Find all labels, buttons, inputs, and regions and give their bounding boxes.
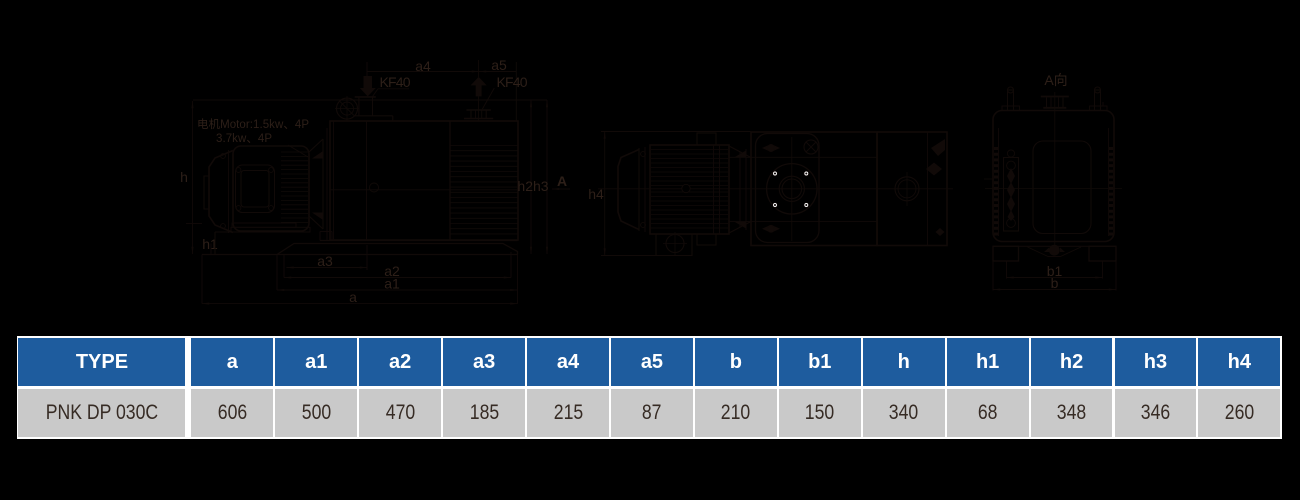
svg-text:3.7kw、4P: 3.7kw、4P — [216, 133, 272, 145]
svg-text:A向: A向 — [1044, 72, 1067, 88]
svg-text:KF40: KF40 — [380, 74, 411, 90]
svg-text:h2h3: h2h3 — [517, 178, 548, 194]
svg-text:h4: h4 — [588, 186, 604, 202]
svg-text:a5: a5 — [491, 57, 507, 73]
svg-text:h1: h1 — [202, 236, 218, 252]
svg-text:a1: a1 — [384, 276, 400, 292]
svg-text:A: A — [557, 173, 567, 189]
svg-text:a3: a3 — [317, 253, 333, 269]
svg-text:h: h — [180, 169, 188, 185]
svg-text:a: a — [349, 289, 357, 305]
svg-text:b: b — [1051, 275, 1059, 291]
svg-text:a4: a4 — [415, 58, 431, 74]
svg-text:KF40: KF40 — [497, 74, 528, 90]
svg-text:电机Motor:1.5kw、4P: 电机Motor:1.5kw、4P — [197, 117, 309, 131]
